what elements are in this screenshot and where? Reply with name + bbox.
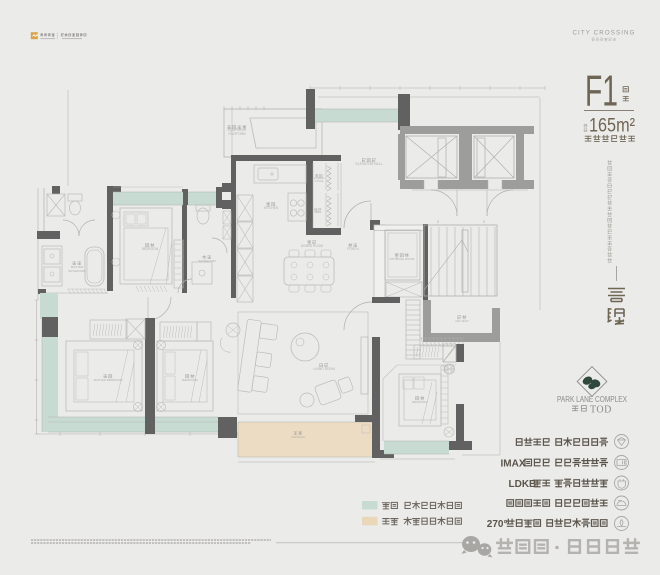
svg-text:2: 2 [437,220,439,224]
svg-text:BATHROOM: BATHROOM [198,259,216,263]
svg-text:IMAX: IMAX [501,459,526,470]
svg-text:TOD: TOD [590,405,612,416]
svg-text:BEDROOM: BEDROOM [142,247,159,251]
svg-text:F1: F1 [585,67,618,116]
svg-text:AIR VENT: AIR VENT [455,319,469,323]
svg-text:PARK LANE COMPLEX: PARK LANE COMPLEX [557,395,628,404]
svg-text:BEDROOM: BEDROOM [412,400,428,404]
svg-text:2: 2 [483,220,485,224]
svg-text:ELEVATOR HALL: ELEVATOR HALL [356,162,383,166]
svg-text:KITCHEN: KITCHEN [264,206,279,210]
svg-text:TERRACE: TERRACE [291,435,305,439]
svg-text:BATHROOM: BATHROOM [68,269,86,273]
svg-text:STORAGE ROOM: STORAGE ROOM [390,257,415,261]
svg-text:PLATFORM: PLATFORM [228,132,245,136]
svg-text:WELL: WELL [314,210,322,214]
svg-text:LIVING ROOM: LIVING ROOM [313,367,335,371]
svg-text:LDKB: LDKB [509,479,537,490]
svg-text:CYCLE: CYCLE [315,179,324,183]
svg-text:BEDROOM: BEDROOM [182,378,198,382]
svg-text:MASTER BEDROOM: MASTER BEDROOM [94,378,123,382]
svg-text:CITY CROSSING: CITY CROSSING [572,30,635,37]
svg-text:165m²: 165m² [589,116,635,137]
svg-text:PORCH: PORCH [347,247,359,251]
svg-text:270°: 270° [487,519,508,530]
svg-text:DINING ROOM: DINING ROOM [301,244,323,248]
